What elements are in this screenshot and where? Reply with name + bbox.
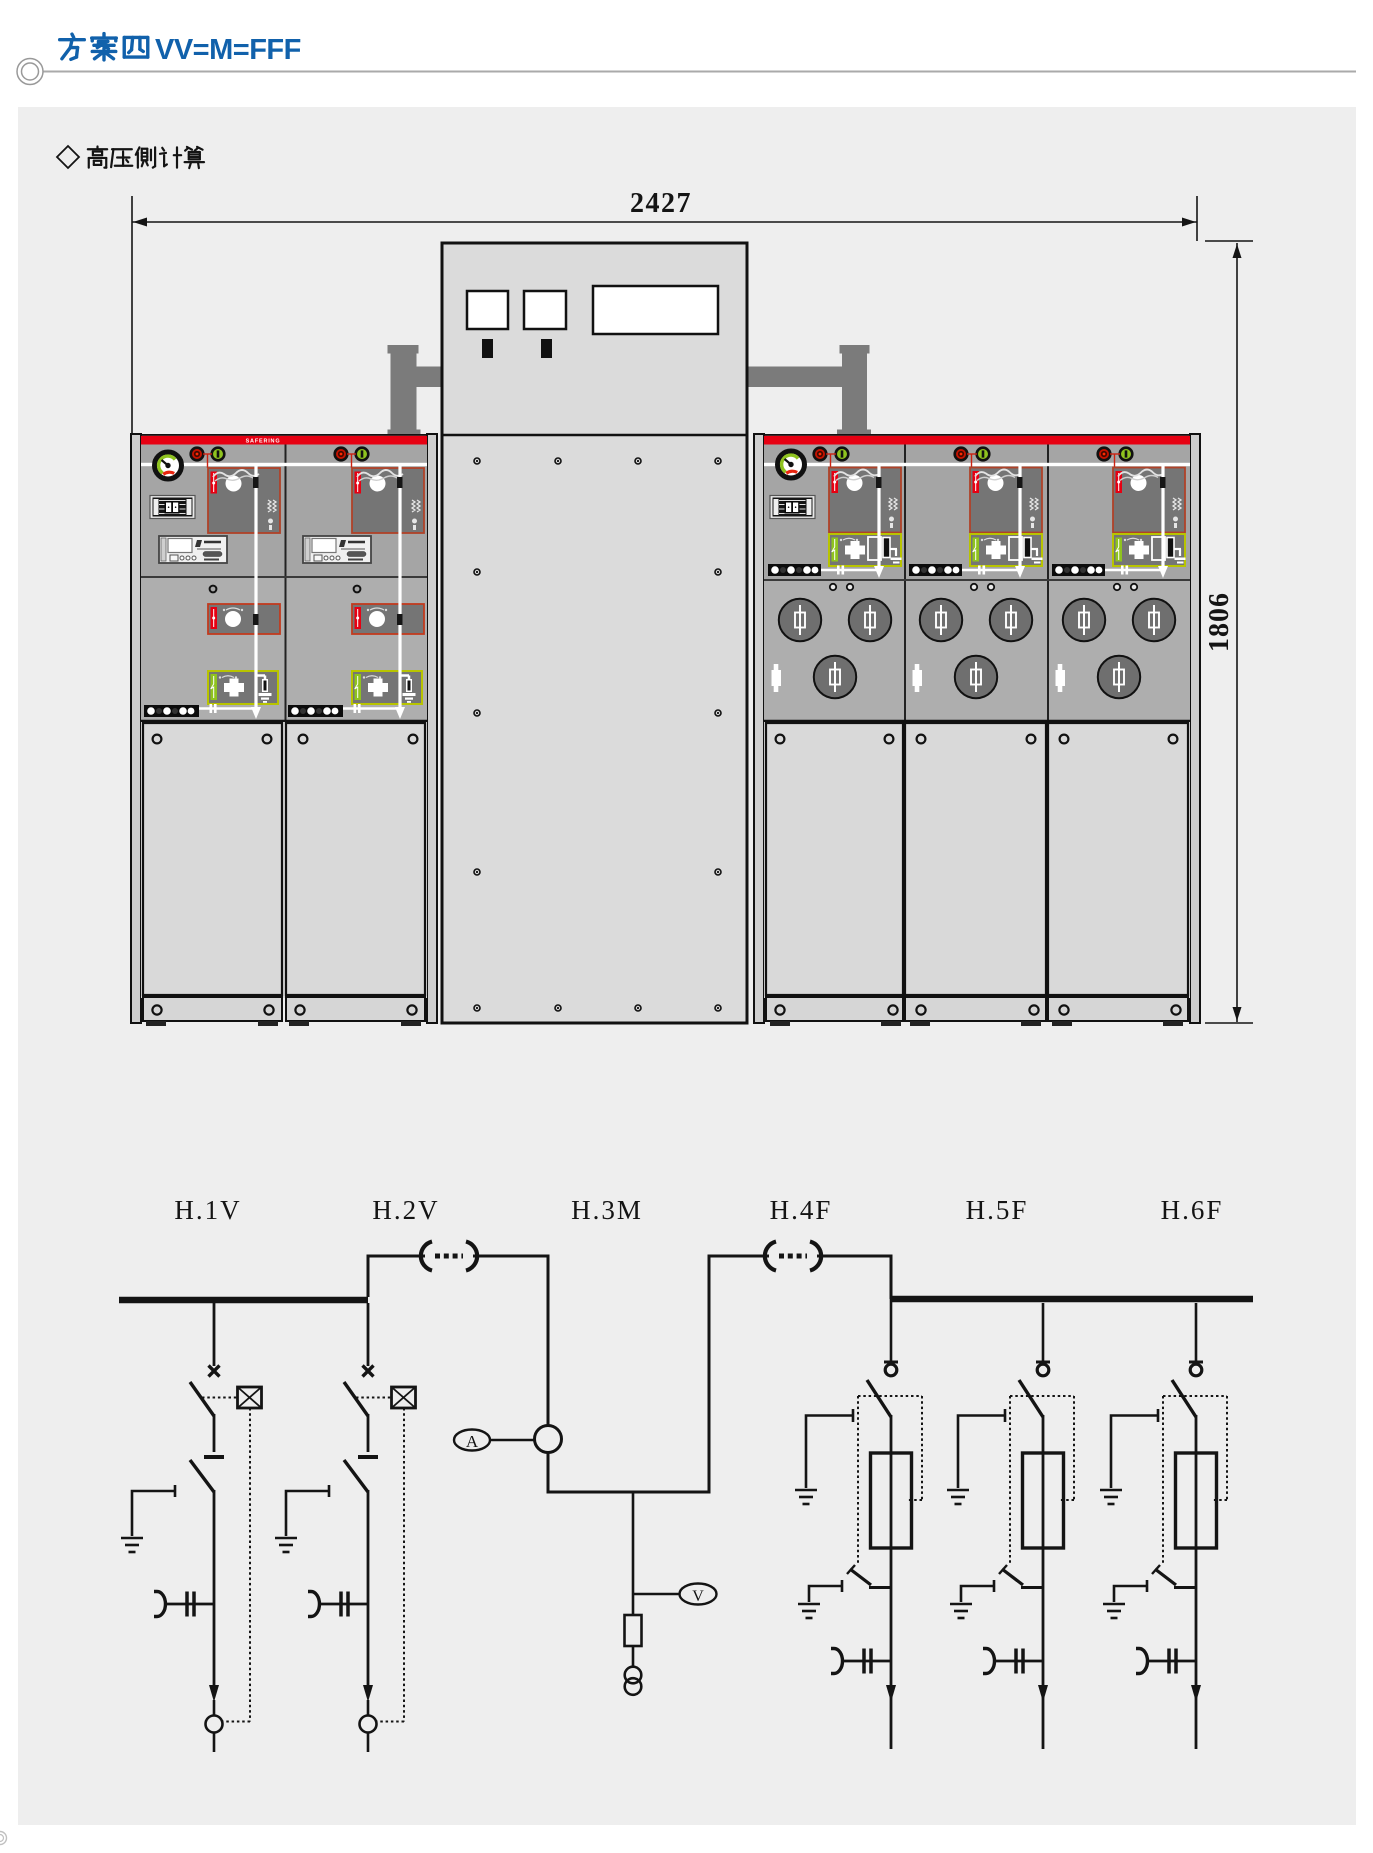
svg-text:A: A (466, 1432, 479, 1451)
svg-text:2427: 2427 (630, 188, 692, 219)
svg-text:H.5F: H.5F (966, 1195, 1029, 1225)
svg-text:H.6F: H.6F (1161, 1195, 1224, 1225)
svg-text:H.1V: H.1V (174, 1195, 241, 1225)
svg-text:H.3M: H.3M (571, 1195, 643, 1225)
svg-text:1806: 1806 (1204, 592, 1235, 652)
svg-text:V: V (692, 1588, 704, 1605)
svg-text:H.2V: H.2V (372, 1195, 439, 1225)
svg-text:H.4F: H.4F (770, 1195, 833, 1225)
svg-text:VV=M=FFF: VV=M=FFF (155, 34, 301, 66)
svg-text:SAFERING: SAFERING (246, 438, 281, 444)
